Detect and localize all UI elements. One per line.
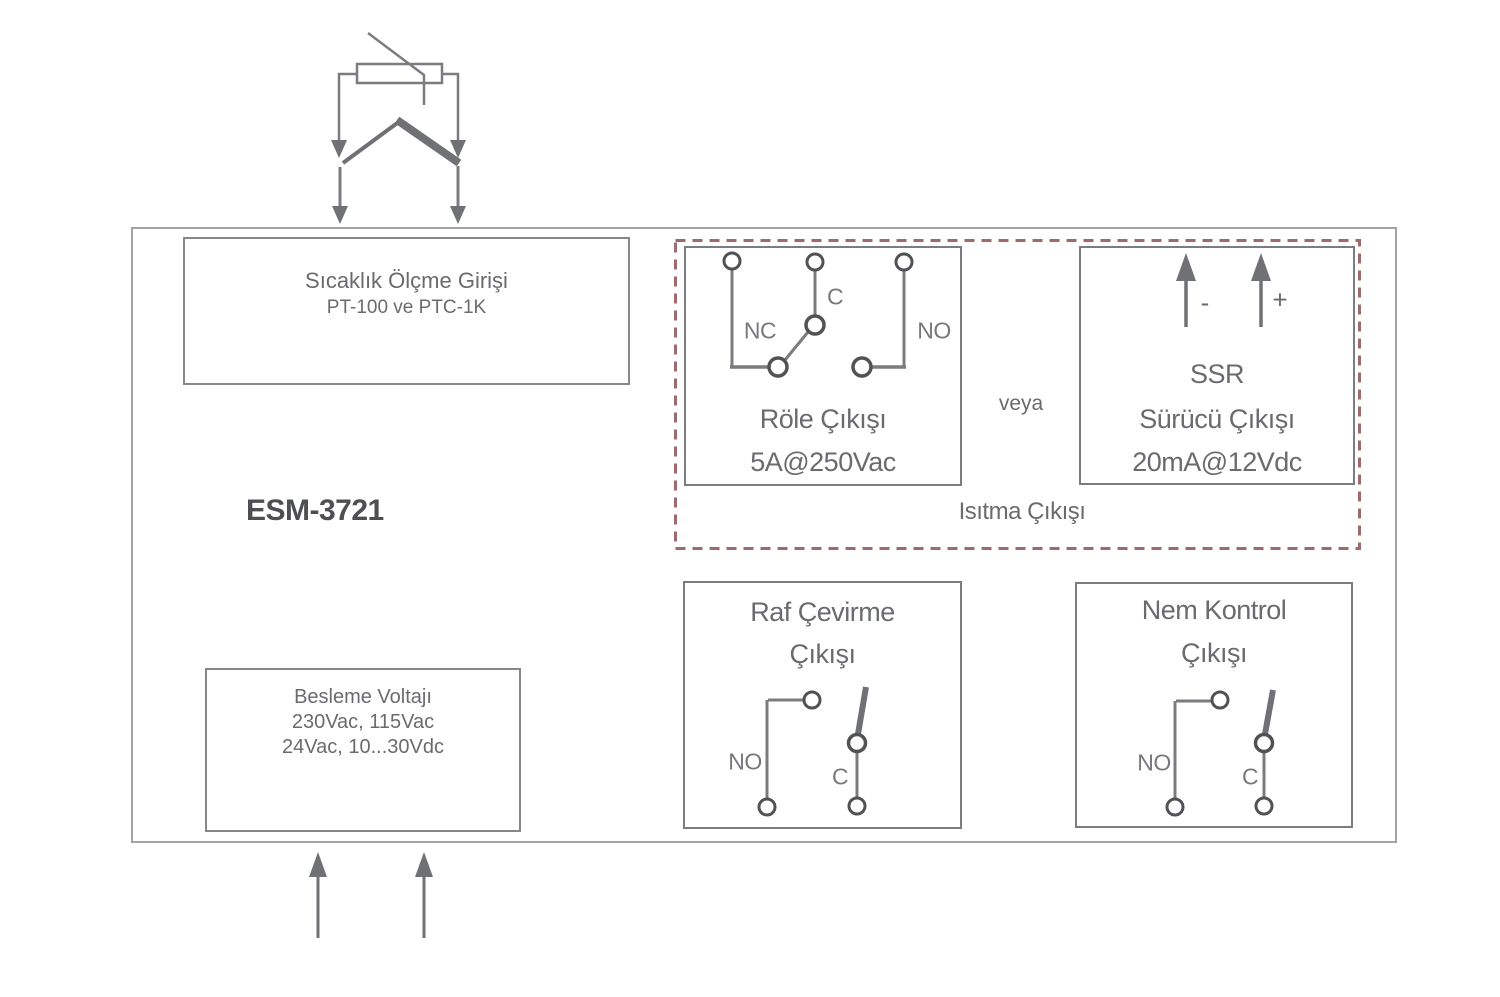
or-label: veya [999, 392, 1043, 416]
relay-terminal-no-label: NO [917, 318, 951, 345]
shelf-output-title-line1: Raf Çevirme [685, 597, 960, 628]
ssr-plus-label: + [1272, 285, 1287, 316]
supply-voltage-line2: 230Vac, 115Vac [207, 710, 519, 735]
shelf-terminal-no-label: NO [728, 749, 762, 776]
temperature-input-box: Sıcaklık Ölçme Girişi PT-100 ve PTC-1K [183, 237, 630, 385]
humidity-output-title-line2: Çıkışı [1077, 638, 1351, 669]
humidity-terminal-c-label: C [1242, 764, 1258, 791]
ssr-output-line2: Sürücü Çıkışı [1081, 404, 1353, 435]
shelf-output-title-line2: Çıkışı [685, 639, 960, 670]
shelf-terminal-c-label: C [832, 764, 848, 791]
ssr-output-line3: 20mA@12Vdc [1081, 447, 1353, 478]
sensor-wire-arrows [331, 74, 466, 158]
temperature-input-subtitle: PT-100 ve PTC-1K [185, 297, 628, 319]
relay-output-box: NC C NO Röle Çıkışı 5A@250Vac [684, 246, 962, 486]
rtd-sensor-icon [357, 33, 442, 105]
relay-output-rating: 5A@250Vac [686, 447, 960, 478]
heating-output-caption: Isıtma Çıkışı [959, 498, 1086, 526]
thermocouple-icon [343, 120, 459, 163]
humidity-control-output-box: Nem Kontrol Çıkışı NO C [1075, 582, 1353, 828]
humidity-output-title-line1: Nem Kontrol [1077, 595, 1351, 626]
supply-voltage-title: Besleme Voltajı [207, 685, 519, 710]
ssr-output-line1: SSR [1081, 359, 1353, 390]
temperature-input-title: Sıcaklık Ölçme Girişi [185, 268, 628, 294]
power-supply-arrows [309, 852, 433, 938]
supply-voltage-line3: 24Vac, 10...30Vdc [207, 735, 519, 760]
ssr-output-box: - + SSR Sürücü Çıkışı 20mA@12Vdc [1079, 246, 1355, 485]
relay-terminal-nc-label: NC [744, 318, 776, 345]
supply-voltage-box: Besleme Voltajı 230Vac, 115Vac 24Vac, 10… [205, 668, 521, 832]
device-model-label: ESM-3721 [246, 494, 384, 528]
humidity-terminal-no-label: NO [1137, 750, 1171, 777]
relay-terminal-c-label: C [827, 284, 843, 311]
sensor-input-arrows [332, 166, 466, 224]
relay-output-title: Röle Çıkışı [686, 404, 960, 435]
ssr-minus-label: - [1201, 288, 1210, 319]
shelf-turning-output-box: Raf Çevirme Çıkışı NO C [683, 581, 962, 829]
diagram-canvas: Sıcaklık Ölçme Girişi PT-100 ve PTC-1K E… [0, 0, 1500, 997]
